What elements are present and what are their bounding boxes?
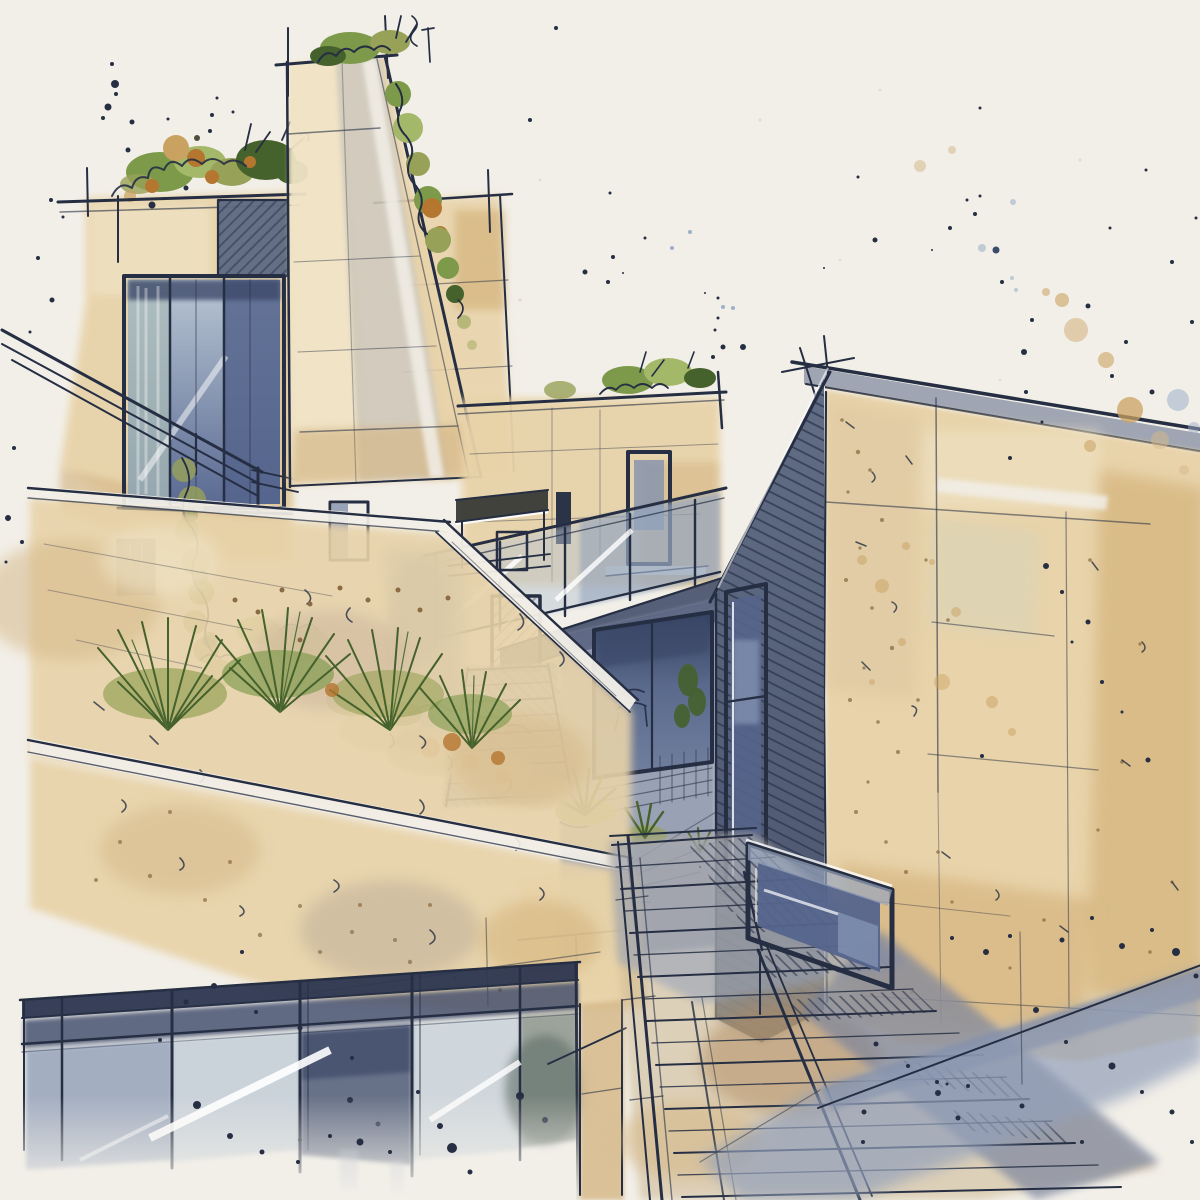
watercolor-sketch [0, 0, 1200, 1200]
artwork-canvas [0, 0, 1200, 1200]
hatched-panel [218, 200, 288, 276]
lower-glass-wall [18, 962, 585, 1200]
corner-glass-window [118, 276, 292, 514]
